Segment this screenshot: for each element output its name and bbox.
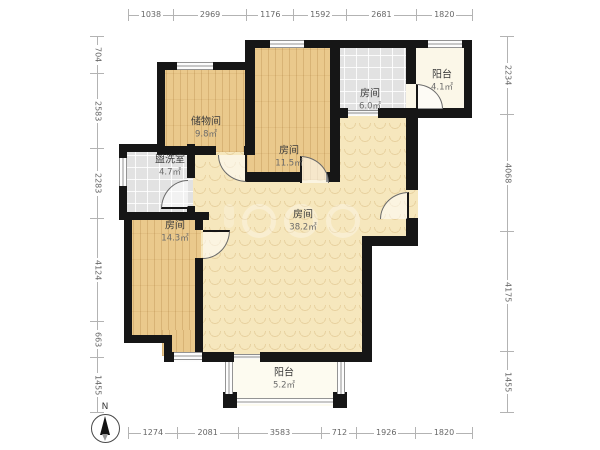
- dimension-segment: 1820: [416, 9, 472, 21]
- dimension-label: 712: [330, 429, 349, 438]
- dimension-label: 2681: [369, 11, 393, 20]
- wall: [119, 144, 127, 158]
- dimension-label: 1926: [374, 429, 398, 438]
- dimension-segment: 1274: [128, 427, 177, 439]
- dimension-segment: 1820: [415, 427, 472, 439]
- room-label-room-mid: 房间 11.5㎡: [275, 146, 302, 169]
- dimension-segment: 1455: [500, 351, 514, 412]
- dimension-label: 4124: [93, 258, 102, 282]
- dimension-label: 1176: [258, 11, 282, 20]
- room-label-balcony-top: 阳台 4.1㎡: [431, 70, 453, 93]
- room-name: 阳台: [431, 70, 453, 83]
- dimension-label: 1820: [432, 429, 456, 438]
- dimension-segment: 2681: [346, 9, 415, 21]
- room-area: 5.2㎡: [273, 380, 295, 390]
- dimension-label: 4175: [503, 280, 512, 304]
- wall: [124, 212, 132, 343]
- room-name: 房间: [275, 146, 302, 159]
- window: [225, 362, 233, 394]
- dimension-segment: 2081: [177, 427, 238, 439]
- wall: [244, 146, 253, 155]
- room-name: 盥洗室: [155, 155, 185, 168]
- room-label-balcony-bottom: 阳台 5.2㎡: [273, 368, 295, 391]
- watermark-shape: [224, 204, 234, 228]
- dimension-label: 1592: [308, 11, 332, 20]
- compass: N: [88, 403, 122, 443]
- room-label-room-left: 房间 14.3㎡: [161, 221, 188, 244]
- dimension-label: 1455: [503, 370, 512, 394]
- dimension-label: 1820: [432, 11, 456, 20]
- window: [270, 40, 304, 48]
- compass-ring: [91, 414, 120, 443]
- dimension-segment: 1176: [246, 9, 293, 21]
- wall: [406, 108, 418, 190]
- wall: [164, 352, 174, 362]
- dimension-segment: 663: [90, 321, 104, 357]
- balcony-post: [223, 392, 237, 408]
- room-floor-main-lower: [193, 240, 370, 358]
- wall: [245, 172, 300, 182]
- wall: [260, 352, 370, 362]
- dimension-label: 3583: [268, 429, 292, 438]
- dimension-label: 1455: [93, 373, 102, 397]
- dimension-segment: 4068: [500, 114, 514, 232]
- balcony-railing: [237, 398, 333, 404]
- room-area: 6.0㎡: [359, 101, 381, 111]
- dimension-segment: 1592: [293, 9, 346, 21]
- compass-north-label: N: [88, 403, 122, 412]
- room-area: 38.2㎡: [289, 222, 316, 232]
- sliding-door: [234, 354, 260, 359]
- dimension-strip-top: 103829691176159226811820: [128, 9, 473, 21]
- dimension-label: 2234: [503, 63, 512, 87]
- room-area: 9.8㎡: [191, 129, 221, 139]
- window: [428, 40, 462, 48]
- dimension-strip-left: 7042583228341246631455: [90, 36, 104, 413]
- dimension-segment: 1038: [128, 9, 173, 21]
- room-label-room-main: 房间 38.2㎡: [289, 210, 316, 233]
- dimension-label: 2283: [93, 171, 102, 195]
- wall: [187, 144, 195, 178]
- room-name: 储物间: [191, 117, 221, 130]
- room-label-storage: 储物间 9.8㎡: [191, 117, 221, 140]
- dimension-segment: 1926: [356, 427, 415, 439]
- floorplan-canvas: 103829691176159226811820 127420813583712…: [0, 0, 600, 450]
- dimension-label: 2081: [195, 429, 219, 438]
- dimension-segment: 2583: [90, 73, 104, 148]
- room-area: 11.5㎡: [275, 158, 302, 168]
- dimension-label: 4068: [503, 161, 512, 185]
- dimension-segment: 2234: [500, 36, 514, 114]
- wall: [362, 236, 372, 362]
- room-label-room-small: 房间 6.0㎡: [359, 89, 381, 112]
- dimension-segment: 2283: [90, 148, 104, 218]
- window: [337, 362, 345, 394]
- window: [119, 158, 127, 186]
- room-area: 14.3㎡: [161, 233, 188, 243]
- wall: [157, 62, 165, 152]
- wall: [406, 218, 418, 244]
- balcony-post: [333, 392, 347, 408]
- dimension-segment: 4124: [90, 218, 104, 321]
- dimension-label: 704: [93, 45, 102, 64]
- dimension-strip-bottom: 12742081358371219261820: [128, 427, 473, 439]
- wall: [202, 352, 234, 362]
- wall: [245, 40, 255, 155]
- wall: [330, 40, 340, 182]
- room-area: 4.1㎡: [431, 82, 453, 92]
- compass-needle-south-icon: [102, 434, 108, 441]
- room-label-washroom: 盥洗室 4.7㎡: [155, 155, 185, 178]
- dimension-label: 1038: [139, 11, 163, 20]
- room-area: 4.7㎡: [155, 167, 185, 177]
- window: [174, 352, 202, 362]
- dimension-segment: 712: [321, 427, 356, 439]
- dimension-label: 2969: [198, 11, 222, 20]
- dimension-strip-right: 2234406841751455: [500, 36, 514, 413]
- wall: [464, 40, 472, 118]
- wall: [406, 40, 416, 84]
- dimension-label: 1274: [141, 429, 165, 438]
- room-name: 房间: [359, 89, 381, 102]
- dimension-segment: 2969: [173, 9, 247, 21]
- wall: [378, 108, 472, 118]
- room-name: 阳台: [273, 368, 295, 381]
- wall: [195, 212, 203, 230]
- dimension-segment: 3583: [238, 427, 322, 439]
- room-name: 房间: [289, 210, 316, 223]
- dimension-label: 663: [93, 330, 102, 349]
- window: [177, 62, 213, 70]
- dimension-segment: 4175: [500, 231, 514, 351]
- dimension-segment: 704: [90, 36, 104, 73]
- compass-needle-north-icon: [100, 416, 110, 435]
- watermark-shape: [242, 204, 276, 238]
- room-name: 房间: [161, 221, 188, 234]
- wall: [195, 258, 203, 362]
- watermark-shape: [326, 204, 360, 238]
- dimension-label: 2583: [93, 99, 102, 123]
